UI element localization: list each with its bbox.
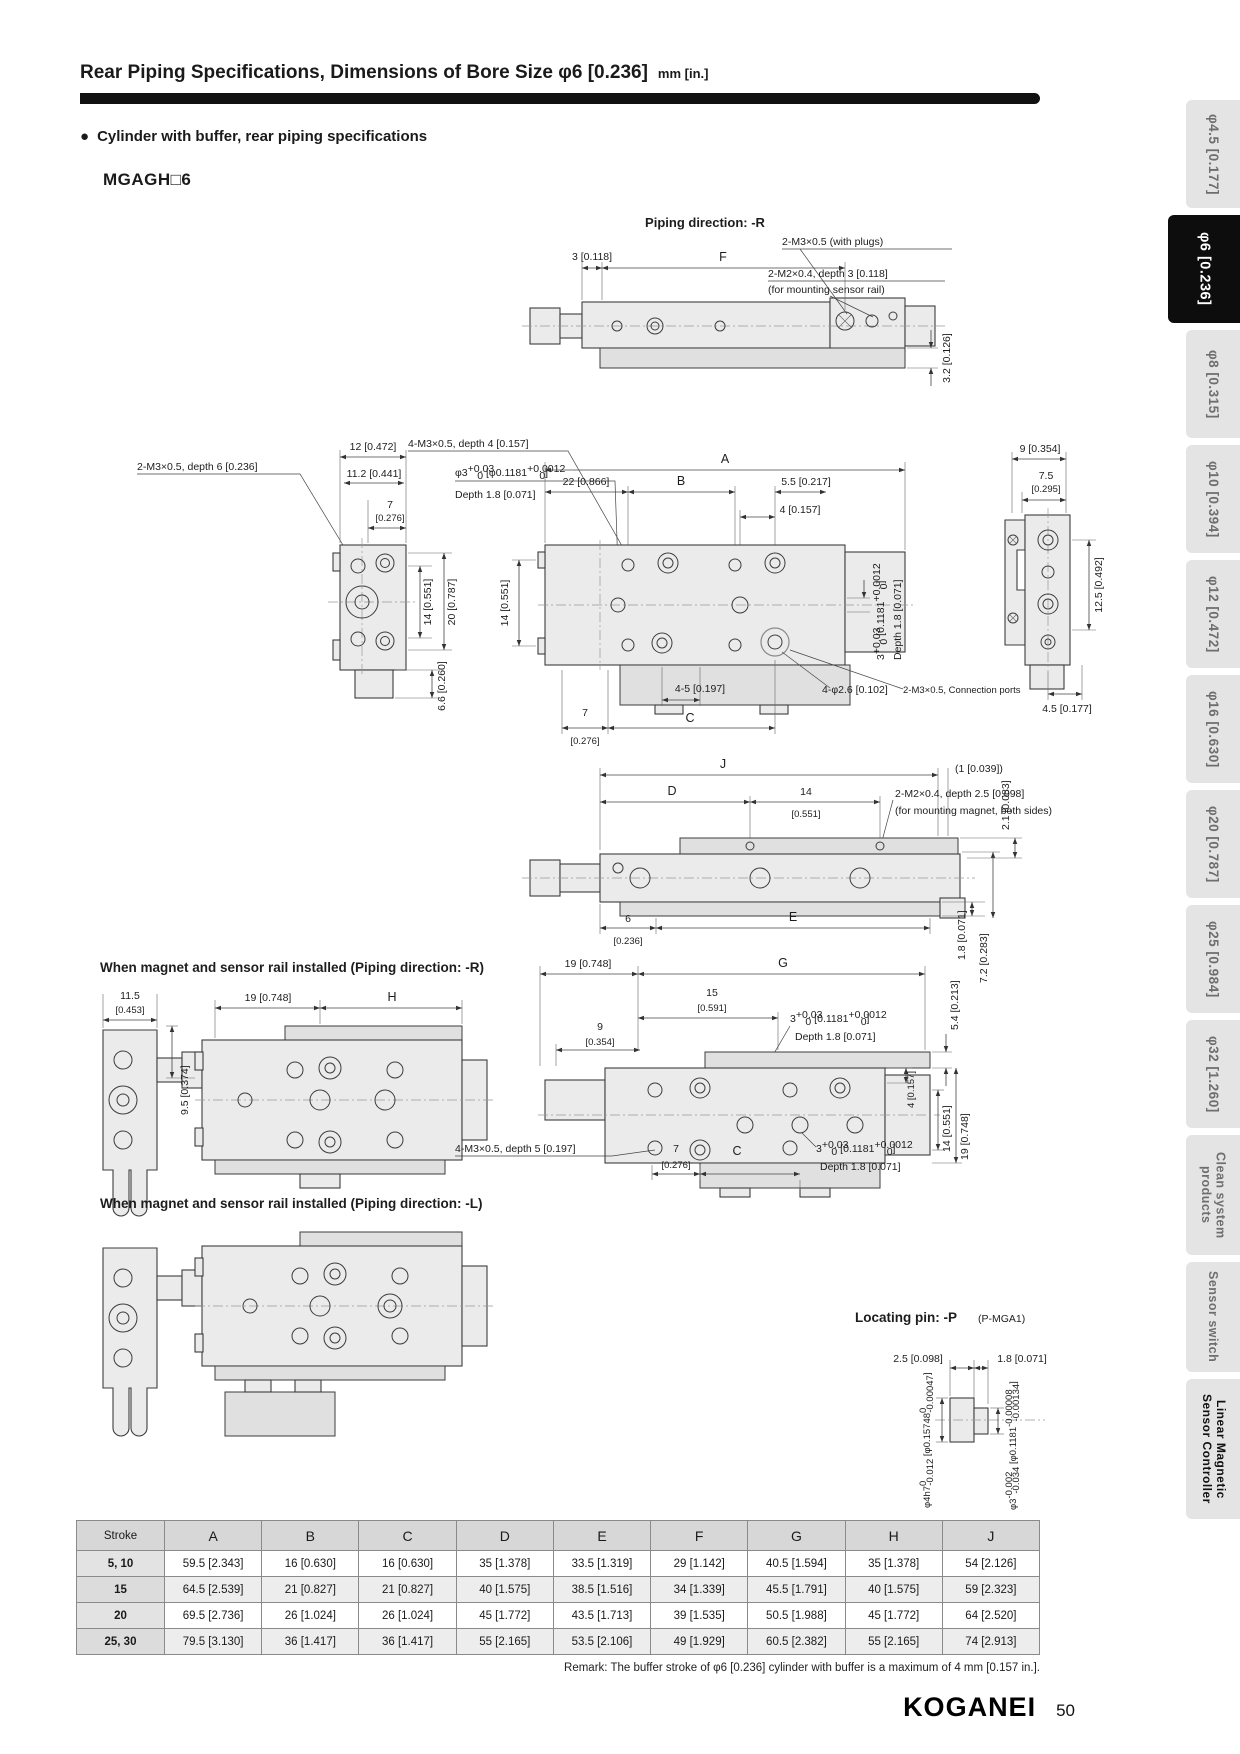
dim-15: 15 [706, 987, 718, 999]
cell-stroke: 5, 10 [77, 1551, 165, 1577]
cell: 40 [1.575] [845, 1577, 942, 1603]
col-header-h: H [845, 1521, 942, 1551]
cell: 43.5 [1.713] [553, 1603, 650, 1629]
cell: 26 [1.024] [262, 1603, 359, 1629]
cell: 59 [2.323] [942, 1577, 1039, 1603]
sidebar-tab-8[interactable]: φ8 [0.315] [1186, 330, 1240, 438]
label-depth18-bottom: Depth 1.8 [0.071] [820, 1161, 901, 1173]
label-connection-ports: 2-M3×0.5, Connection ports [903, 685, 1021, 696]
dim-12: 12 [0.472] [350, 441, 397, 453]
label-phi3-tolerance: φ3+0.030 [φ0.1181+0.00120] [455, 463, 565, 482]
col-header-f: F [651, 1521, 748, 1551]
drawing-top-view: Piping direction: -R 3 [0.118] F [522, 215, 953, 386]
dim-g: G [778, 956, 788, 970]
dim-4: 4 [0.157] [780, 504, 821, 516]
cell: 45 [1.772] [456, 1603, 553, 1629]
cell: 35 [1.378] [456, 1551, 553, 1577]
dimension-table: Stroke A B C D E F G H J 5, 10 59.5 [2.3… [76, 1520, 1040, 1655]
sidebar-tab-10[interactable]: φ10 [0.394] [1186, 445, 1240, 553]
cell: 36 [1.417] [262, 1629, 359, 1655]
table-header-row: Stroke A B C D E F G H J [77, 1521, 1040, 1551]
label-depth18-g: Depth 1.8 [0.071] [795, 1031, 876, 1043]
col-header-c: C [359, 1521, 456, 1551]
dim-4b: 4 [0.157] [906, 1071, 917, 1108]
dim-19-r: 19 [0.748] [959, 1113, 971, 1160]
dim-7: 7 [387, 499, 393, 511]
dim-22: 22 [0.866] [563, 476, 610, 488]
dim-14: 14 [0.551] [422, 579, 434, 626]
drawing-installed-l [103, 1232, 495, 1436]
label-magnet-note: (for mounting magnet, both sides) [895, 805, 1052, 817]
catalog-page: Rear Piping Specifications, Dimensions o… [0, 0, 1240, 1754]
dim-4-5: 4.5 [0.177] [1042, 703, 1092, 715]
drawing-locating-pin: Locating pin: -P (P-MGA1) 2.5 [0.098] 1.… [855, 1310, 1047, 1510]
dim-7-2: 7.2 [0.283] [978, 933, 990, 983]
dim-5-4: 5.4 [0.213] [949, 980, 961, 1030]
label-pin-tol-left: φ4h70-0.012 [φ0.157480-0.00047] [918, 1373, 936, 1508]
cell: 69.5 [2.736] [165, 1603, 262, 1629]
cell: 45 [1.772] [845, 1603, 942, 1629]
dim-7b: 7 [582, 707, 588, 719]
label-sensor-rail: (for mounting sensor rail) [768, 284, 885, 296]
dim-11-2: 11.2 [0.441] [347, 468, 402, 480]
cell: 16 [0.630] [262, 1551, 359, 1577]
col-header-j: J [942, 1521, 1039, 1551]
cell: 36 [1.417] [359, 1629, 456, 1655]
dim-9b: 9 [597, 1021, 603, 1033]
dim-7-5-in: [0.295] [1031, 484, 1060, 495]
label-depth18: Depth 1.8 [0.071] [455, 489, 536, 501]
sidebar-tab-12[interactable]: φ12 [0.472] [1186, 560, 1240, 668]
cell: 33.5 [1.319] [553, 1551, 650, 1577]
cell: 64.5 [2.539] [165, 1577, 262, 1603]
dim-9b-in: [0.354] [585, 1037, 614, 1048]
dim-9-5: 9.5 [0.374] [179, 1065, 191, 1115]
cell: 59.5 [2.343] [165, 1551, 262, 1577]
cell: 55 [2.165] [456, 1629, 553, 1655]
koganei-logo: KOGANEI [903, 1692, 1036, 1723]
cell: 53.5 [2.106] [553, 1629, 650, 1655]
drawing-side-magnet-view: J (1 [0.039]) D 14 [0.551] 2-M2×0.4, dep… [522, 757, 1052, 983]
sidebar-tab-32[interactable]: φ32 [1.260] [1186, 1020, 1240, 1128]
dim-6: 6 [625, 913, 631, 925]
dim-19b: 19 [0.748] [565, 958, 612, 970]
piping-direction-title: Piping direction: -R [645, 215, 765, 230]
cell: 39 [1.535] [651, 1603, 748, 1629]
dim-14-r: 14 [0.551] [941, 1105, 953, 1152]
sidebar-tab-16[interactable]: φ16 [0.630] [1186, 675, 1240, 783]
dim-c: C [685, 711, 694, 725]
label-plugs: 2-M3×0.5 (with plugs) [782, 236, 883, 248]
cell: 26 [1.024] [359, 1603, 456, 1629]
dim-4-5holes: 4-5 [0.197] [675, 683, 725, 695]
cell-stroke: 20 [77, 1603, 165, 1629]
dim-1-0039: (1 [0.039]) [955, 763, 1003, 775]
col-header-g: G [748, 1521, 845, 1551]
dim-7c: 7 [673, 1143, 679, 1155]
col-header-b: B [262, 1521, 359, 1551]
cell: 35 [1.378] [845, 1551, 942, 1577]
dim-15-in: [0.591] [697, 1003, 726, 1014]
cell: 79.5 [3.130] [165, 1629, 262, 1655]
label-4-phi26: 4-φ2.6 [0.102] [822, 684, 888, 696]
sidebar-tab-4-5[interactable]: φ4.5 [0.177] [1186, 100, 1240, 208]
dim-5-5: 5.5 [0.217] [781, 476, 831, 488]
dim-2-5: 2.5 [0.098] [893, 1353, 943, 1365]
label-pin-tol-right: φ3-0.002-0.034 [φ0.1181-0.00008-0.00134] [1004, 1381, 1022, 1510]
cell: 21 [0.827] [359, 1577, 456, 1603]
label-m3-depth4: 4-M3×0.5, depth 4 [0.157] [408, 438, 529, 450]
cell: 16 [0.630] [359, 1551, 456, 1577]
sidebar-tab-6-active[interactable]: φ6 [0.236] [1168, 215, 1240, 323]
label-m3-depth5: 4-M3×0.5, depth 5 [0.197] [455, 1143, 576, 1155]
dim-9: 9 [0.354] [1020, 443, 1061, 455]
cell: 40.5 [1.594] [748, 1551, 845, 1577]
dim-6-in: [0.236] [613, 936, 642, 947]
dim-11-5: 11.5 [120, 990, 140, 1002]
cell: 54 [2.126] [942, 1551, 1039, 1577]
installed-r-heading: When magnet and sensor rail installed (P… [100, 960, 484, 975]
label-tol3-g: 3+0.030 [0.1181+0.00120] [790, 1009, 887, 1028]
dim-7-in: [0.276] [375, 513, 404, 524]
dim-14-left: 14 [0.551] [499, 580, 511, 627]
dim-20: 20 [0.787] [446, 579, 458, 626]
dim-b: B [677, 474, 685, 488]
dim-h: H [387, 990, 396, 1004]
drawing-plan-view: 4-M3×0.5, depth 4 [0.157] φ3+0.030 [φ0.1… [408, 438, 1021, 747]
col-header-e: E [553, 1521, 650, 1551]
dim-3-2: 3.2 [0.126] [941, 333, 953, 383]
technical-drawings: Piping direction: -R 3 [0.118] F [0, 0, 1180, 1512]
dim-e: E [789, 910, 797, 924]
sidebar-tab-linear-magnetic[interactable]: Linear Magnetic Sensor Controller [1186, 1379, 1240, 1519]
sidebar-tab-clean-system[interactable]: Clean system products [1186, 1135, 1240, 1255]
dim-j: J [720, 757, 726, 771]
table-row: 15 64.5 [2.539]21 [0.827]21 [0.827]40 [1… [77, 1577, 1040, 1603]
cell: 50.5 [1.988] [748, 1603, 845, 1629]
dim-f: F [719, 250, 727, 264]
dim-3-0118: 3 [0.118] [572, 251, 612, 263]
dim-2-1: 2.1 [0.083] [1000, 780, 1012, 830]
dim-7-5: 7.5 [1039, 470, 1054, 482]
cell: 45.5 [1.791] [748, 1577, 845, 1603]
dim-19: 19 [0.748] [245, 992, 292, 1004]
drawing-left-side-view: 2-M3×0.5, depth 6 [0.236] 12 [0.472] 11.… [137, 441, 458, 711]
dim-d: D [667, 784, 676, 798]
page-footer: KOGANEI 50 [903, 1692, 1075, 1723]
installed-l-heading: When magnet and sensor rail installed (P… [100, 1196, 483, 1211]
dim-14a-in: [0.551] [791, 809, 820, 820]
col-header-a: A [165, 1521, 262, 1551]
cell: 64 [2.520] [942, 1603, 1039, 1629]
drawing-installed-r: 11.5 [0.453] 19 [0.748] H [103, 990, 495, 1216]
remark-note: Remark: The buffer stroke of φ6 [0.236] … [564, 1662, 1040, 1674]
table-row: 25, 30 79.5 [3.130]36 [1.417]36 [1.417]5… [77, 1629, 1040, 1655]
dim-7b-in: [0.276] [570, 736, 599, 747]
cell: 49 [1.929] [651, 1629, 748, 1655]
dim-12-5: 12.5 [0.492] [1093, 557, 1105, 613]
dim-6-6: 6.6 [0.260] [436, 661, 448, 711]
cell: 40 [1.575] [456, 1577, 553, 1603]
sidebar-tab-sensor-switch[interactable]: Sensor switch [1186, 1262, 1240, 1372]
dim-14a: 14 [800, 786, 812, 798]
cell: 55 [2.165] [845, 1629, 942, 1655]
cell: 21 [0.827] [262, 1577, 359, 1603]
cell-stroke: 25, 30 [77, 1629, 165, 1655]
cell-stroke: 15 [77, 1577, 165, 1603]
sidebar-tab-20[interactable]: φ20 [0.787] [1186, 790, 1240, 898]
dim-11-5-in: [0.453] [115, 1005, 144, 1016]
cell: 74 [2.913] [942, 1629, 1039, 1655]
table-row: 5, 10 59.5 [2.343]16 [0.630]16 [0.630]35… [77, 1551, 1040, 1577]
dim-7c-in: [0.276] [661, 1160, 690, 1171]
locating-pin-title: Locating pin: -P [855, 1310, 957, 1325]
page-number: 50 [1056, 1701, 1075, 1721]
table-row: 20 69.5 [2.736]26 [1.024]26 [1.024]45 [1… [77, 1603, 1040, 1629]
dim-a: A [721, 452, 730, 466]
drawing-right-side-view: 9 [0.354] 7.5 [0.295] 12.5 [0.492] [1005, 443, 1105, 715]
col-header-d: D [456, 1521, 553, 1551]
cell: 29 [1.142] [651, 1551, 748, 1577]
locating-pin-model: (P-MGA1) [978, 1313, 1025, 1325]
cell: 60.5 [2.382] [748, 1629, 845, 1655]
dim-1-8: 1.8 [0.071] [956, 910, 968, 960]
col-header-stroke: Stroke [77, 1521, 165, 1551]
label-depth18-right: Depth 1.8 [0.071] [892, 579, 904, 660]
dim-1-8b: 1.8 [0.071] [997, 1353, 1047, 1365]
label-m2-depth3: 2-M2×0.4, depth 3 [0.118] [768, 268, 888, 280]
cell: 38.5 [1.516] [553, 1577, 650, 1603]
label-m3-depth6: 2-M3×0.5, depth 6 [0.236] [137, 461, 258, 473]
dim-c2: C [732, 1144, 741, 1158]
sidebar-tab-25[interactable]: φ25 [0.984] [1186, 905, 1240, 1013]
cell: 34 [1.339] [651, 1577, 748, 1603]
drawing-installed-r-plan: 19 [0.748] G 15 [0.591] 9 [0.354] 3+0.03… [455, 956, 971, 1197]
